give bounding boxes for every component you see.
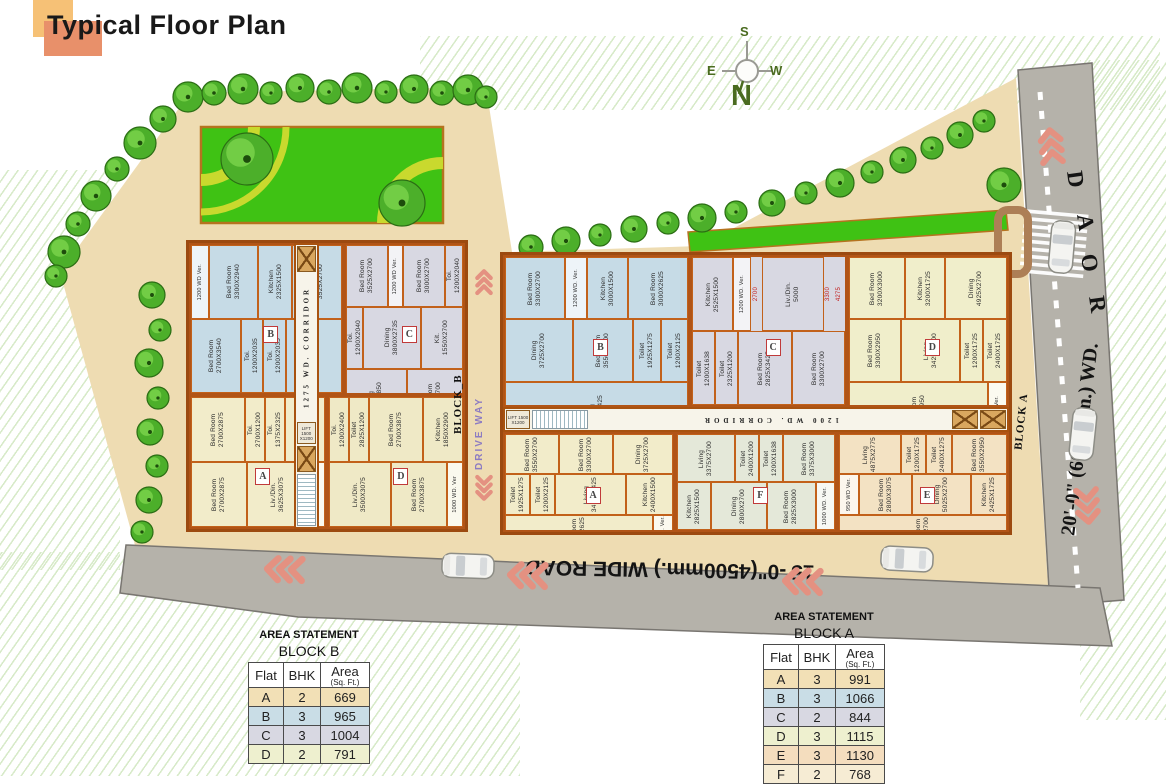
- room-label: Bed Room3550X2700: [524, 437, 540, 472]
- room-label: 1200 WD Ver.: [392, 258, 399, 294]
- room: Toilet1200X1638: [692, 331, 715, 405]
- tree-icon: [131, 521, 153, 543]
- area-table-row: A 2 669: [249, 688, 370, 707]
- room-label: Bed Room2700X2875: [211, 477, 227, 512]
- tree-icon: [48, 236, 80, 268]
- col-flat: Flat: [764, 645, 799, 670]
- cell-bhk: 2: [799, 765, 836, 784]
- room: Bed Room3300X2950: [849, 319, 901, 381]
- compass-north-label: N: [731, 80, 752, 113]
- room: Bed Room2700X3875: [369, 397, 423, 462]
- tree-icon: [124, 127, 156, 159]
- room: Bed Room2700X2875: [191, 397, 245, 462]
- room: Dining4925X2700: [945, 257, 1007, 319]
- area-table-row: D 2 791: [249, 745, 370, 764]
- room-label: Bed Room3000X2700: [416, 258, 432, 293]
- room-label: 4275: [836, 287, 843, 301]
- compass-east-label: E: [707, 63, 716, 78]
- cell-area: 844: [836, 708, 885, 727]
- room-label: 1200 WD. Ver.: [573, 269, 580, 307]
- tree-icon: [973, 110, 995, 132]
- area-table-row: F 2 768: [764, 765, 885, 784]
- cell-bhk: 2: [284, 688, 321, 707]
- flat-badge: C: [402, 326, 417, 343]
- room: 1200 WD Ver.: [191, 245, 209, 319]
- cell-flat: B: [249, 707, 284, 726]
- room-label: Kitchen2825X1500: [686, 489, 702, 524]
- car-icon: [1048, 220, 1076, 274]
- cell-bhk: 2: [799, 708, 836, 727]
- room-label: Living4875X2775: [862, 437, 878, 472]
- tree-icon: [890, 147, 916, 173]
- area-statement-block-name: BLOCK B: [248, 643, 370, 659]
- tree-icon: [379, 180, 425, 226]
- room: 1200 WD Ver.: [388, 245, 402, 307]
- room-label: Toi.2700X1200: [247, 412, 263, 447]
- flat-b: Bed Room3300X2700 1200 WD. Ver. Kitchen3…: [503, 255, 690, 407]
- tree-icon: [135, 349, 163, 377]
- road-letter-d: D: [1062, 169, 1089, 189]
- room-label: 1000 WD. Ver: [452, 476, 459, 513]
- room: Toi.2700X1200: [245, 397, 265, 462]
- area-statement-block-name: BLOCK A: [763, 625, 885, 641]
- room: Kitchen2525X1500: [692, 257, 733, 331]
- room-label: 1200 WD. Ver.: [660, 516, 667, 532]
- room-label: Toi.1200X2040: [347, 320, 363, 355]
- stairwell-icon: [297, 446, 316, 472]
- area-table-row: A 3 991: [764, 670, 885, 689]
- room-label: 2700: [753, 287, 760, 301]
- room: Toilet1200X1725: [901, 434, 926, 474]
- flat-e: Living4875X2775 Toilet1200X1725 Toilet24…: [837, 432, 1009, 532]
- col-area-unit: (Sq. Ft.): [836, 661, 884, 669]
- room-label: Dining2800X2700: [731, 489, 747, 524]
- room: Dining3725X2700: [613, 434, 673, 474]
- room: Bed Room3000X2625: [505, 515, 653, 532]
- room: 3300: [824, 257, 835, 331]
- flat-badge: D: [393, 468, 408, 485]
- room-label: Bed Room3300X2700: [578, 437, 594, 472]
- flat-badge: A: [255, 468, 270, 485]
- room: Bed Room3300X2700: [559, 434, 613, 474]
- room-label: Toilet2400X1725: [987, 333, 1003, 368]
- area-table: Flat BHK Area (Sq. Ft.) A 3 991 B 3: [763, 644, 885, 784]
- tree-icon: [173, 82, 203, 112]
- cell-bhk: 3: [284, 707, 321, 726]
- room-label: Living4575X3425: [589, 395, 605, 407]
- room-label: Toi.1200X2035: [244, 338, 260, 373]
- area-statement-title: AREA STATEMENT: [763, 611, 885, 623]
- room-label: Toilet2400X1200: [740, 441, 756, 476]
- tree-icon: [342, 73, 372, 103]
- room-label: Kitchen1850X2900: [435, 412, 451, 447]
- room-label: Kitchen2400X1500: [642, 477, 658, 512]
- tree-icon: [150, 106, 176, 132]
- cell-area: 991: [836, 670, 885, 689]
- room: 1000 WD. Ver.: [816, 482, 835, 530]
- room-label: Toilet1200X1725: [964, 333, 980, 368]
- room-label: Toi.1200X2035: [267, 338, 283, 373]
- compass: S E W N: [698, 24, 794, 110]
- cell-area: 1004: [321, 726, 370, 745]
- tree-icon: [657, 212, 679, 234]
- room: Living2700X4850: [346, 369, 407, 395]
- cell-area: 768: [836, 765, 885, 784]
- tree-icon: [139, 282, 165, 308]
- room: Bed Room2825X3000: [767, 482, 816, 530]
- block-a: Bed Room3300X2700 1200 WD. Ver. Kitchen3…: [500, 252, 1012, 535]
- room-label: Toi.1375X2325: [267, 412, 283, 447]
- stairwell-icon: [297, 246, 316, 272]
- col-flat: Flat: [249, 663, 284, 688]
- col-bhk: BHK: [284, 663, 321, 688]
- area-table-row: C 3 1004: [249, 726, 370, 745]
- room: Toilet2400X1200: [735, 434, 759, 482]
- room: Bed Room2800X3075: [859, 474, 912, 514]
- room: Bed Room3550X2700: [505, 434, 559, 474]
- room-label: 1200 WD. Ver.: [739, 275, 746, 313]
- flat-badge: E: [920, 487, 935, 504]
- room-label: Bed Room3300X2700: [811, 351, 827, 386]
- room: Bed Room2700X2875: [191, 462, 247, 527]
- room-label: Toilet2825X1200: [351, 412, 367, 447]
- tree-icon: [475, 86, 497, 108]
- tree-icon: [45, 265, 67, 287]
- car-icon: [880, 546, 933, 573]
- room-label: Bed Room2700X3875: [388, 412, 404, 447]
- tree-icon: [66, 212, 90, 236]
- area-statement-block-b: AREA STATEMENT BLOCK B Flat BHK Area (Sq…: [248, 629, 370, 764]
- room: Kitchen3200X1725: [905, 257, 945, 319]
- room: Living3375X2700: [677, 434, 735, 482]
- room-label: Dining4925X2700: [968, 271, 984, 306]
- room-label: Toilet2400X1275: [931, 437, 947, 472]
- room-label: Bed Room2800X3075: [878, 477, 894, 512]
- area-table-row: B 3 1066: [764, 689, 885, 708]
- tree-icon: [105, 157, 129, 181]
- cell-flat: A: [764, 670, 799, 689]
- room: 1200 WD. Ver.: [565, 257, 587, 319]
- room: Bed Room2700X3540: [191, 319, 241, 393]
- car-icon: [1068, 407, 1097, 461]
- lift: LIFT 1500 X1200: [506, 410, 530, 429]
- room-label: 1000 WD. Ver.: [822, 487, 829, 525]
- room: Toilet2400X1275: [926, 434, 951, 474]
- col-area-unit: (Sq. Ft.): [321, 679, 369, 687]
- room-label: Dining3725X2700: [531, 333, 547, 368]
- room: Bed Room3550X2950: [849, 382, 988, 408]
- cell-area: 1130: [836, 746, 885, 765]
- flat-c: Bed Room3525X2700 1200 WD Ver. Bed Room3…: [344, 243, 465, 395]
- tree-icon: [947, 122, 973, 148]
- tree-icon: [286, 74, 314, 102]
- room-label: Bed Room3400X2700: [915, 517, 931, 532]
- flat-badge: F: [753, 487, 768, 504]
- room-label: Toilet1200X1638: [696, 351, 712, 386]
- block-b-label: BLOCK_B: [452, 356, 464, 434]
- flat-a: Bed Room3550X2700 Bed Room3300X2700 Dini…: [503, 432, 675, 532]
- tree-icon: [202, 81, 226, 105]
- cell-bhk: 3: [284, 726, 321, 745]
- room: Bed Room3300X2700: [792, 331, 846, 405]
- room: Toi.1375X2325: [265, 397, 285, 462]
- tree-icon: [725, 201, 747, 223]
- room: Kitchen2325X1500: [258, 245, 292, 319]
- room-label: Bed Room3525X2700: [359, 258, 375, 293]
- compass-south-label: S: [740, 24, 749, 39]
- room: Toilet1200X2125: [530, 474, 555, 514]
- room-label: Dining3725X2700: [635, 437, 651, 472]
- room-label: 950 WD Ver.: [994, 396, 1001, 407]
- room: Toilet2825X1200: [349, 397, 369, 462]
- room: Bed Room3300X2700: [505, 257, 565, 319]
- room: Toilet1925X1275: [633, 319, 660, 381]
- area-statement-title: AREA STATEMENT: [248, 629, 370, 641]
- room-label: Bed Room3000X2700: [427, 382, 443, 394]
- room: Bed Room3200X3000: [849, 257, 905, 319]
- room: 1200 WD. Ver.: [653, 515, 673, 532]
- tree-icon: [921, 137, 943, 159]
- room-label: Bed Room3300X2700: [527, 271, 543, 306]
- tree-icon: [137, 419, 163, 445]
- cell-flat: A: [249, 688, 284, 707]
- room: Toilet1925X1275: [505, 474, 530, 514]
- room-label: Bed Room2825X3425: [757, 351, 773, 386]
- corridor: 1275 WD. CORRIDOR LIFT 1500 X1200: [294, 243, 319, 529]
- cell-flat: C: [764, 708, 799, 727]
- flat-badge: B: [263, 326, 278, 343]
- room: Bed Room3400X2700: [839, 515, 1007, 532]
- tree-icon: [149, 319, 171, 341]
- cell-area: 791: [321, 745, 370, 764]
- cell-bhk: 3: [799, 670, 836, 689]
- room: Toi.1200X2035: [241, 319, 264, 393]
- room: Bed Room3375X3000: [783, 434, 835, 482]
- room-label: Kit.1550X2700: [434, 320, 450, 355]
- room: 4275: [834, 257, 845, 331]
- title-block: Typical Floor Plan: [0, 0, 360, 60]
- staircase-icon: [532, 410, 588, 429]
- room-label: Liv./Din.3625X3075: [270, 477, 286, 512]
- tree-icon: [759, 190, 785, 216]
- cell-flat: B: [764, 689, 799, 708]
- col-area-label: Area: [836, 646, 884, 661]
- col-area: Area (Sq. Ft.): [836, 645, 885, 670]
- tree-icon: [861, 161, 883, 183]
- col-area: Area (Sq. Ft.): [321, 663, 370, 688]
- room-label: Dining5025X2700: [934, 477, 950, 512]
- room: Living4575X3425: [505, 382, 688, 408]
- area-table-row: D 3 1115: [764, 727, 885, 746]
- room-label: Kitchen2425X1725: [981, 477, 997, 512]
- room: Toilet1200X1638: [759, 434, 783, 482]
- room-label: Dining3800X2735: [384, 320, 400, 355]
- room-label: Living2700X4850: [368, 382, 384, 394]
- corridor-label: 1275 WD. CORRIDOR: [296, 273, 317, 421]
- room: Kitchen2400X1500: [626, 474, 673, 514]
- cell-flat: F: [764, 765, 799, 784]
- room: 950 WD Ver.: [988, 382, 1007, 408]
- tree-icon: [552, 227, 580, 255]
- car-icon: [442, 553, 495, 579]
- corridor: LIFT 1500 X1200 1200 WD. CORRIDOR: [503, 407, 1009, 432]
- tree-icon: [987, 168, 1021, 202]
- block-b: 1200 WD Ver. Bed Room3300X2940 Kitchen23…: [186, 240, 468, 532]
- room-label: Toilet1200X2125: [535, 477, 551, 512]
- stairwell-icon: [980, 410, 1006, 429]
- room-label: Toilet2325X1200: [719, 351, 735, 386]
- room: Kitchen2425X1725: [971, 474, 1007, 514]
- room: Toi.1200X2040: [346, 307, 364, 369]
- tree-icon: [621, 216, 647, 242]
- area-table-header-row: Flat BHK Area (Sq. Ft.): [764, 645, 885, 670]
- page-title: Typical Floor Plan: [47, 10, 287, 41]
- cell-flat: E: [764, 746, 799, 765]
- room: Toilet2400X1725: [983, 319, 1007, 381]
- room: Kitchen2825X1500: [677, 482, 711, 530]
- room-label: 950 WD Ver.: [846, 478, 853, 511]
- tree-icon: [147, 387, 169, 409]
- area-table-row: E 3 1130: [764, 746, 885, 765]
- room-label: Bed Room2700X3875: [411, 477, 427, 512]
- room-label: Kitchen3000X1500: [600, 271, 616, 306]
- room: Toilet1200X1725: [960, 319, 984, 381]
- room-label: 3300: [825, 287, 832, 301]
- room: Toi.1200X2400: [329, 397, 349, 462]
- room-label: Liv./Din.5000: [785, 282, 801, 307]
- room: Toi.1200X2040: [445, 245, 463, 307]
- room-label: Toilet1925X1275: [639, 333, 655, 368]
- room: 950 WD Ver.: [839, 474, 859, 514]
- room: Bed Room3525X2700: [346, 245, 389, 307]
- room: Toilet1200X2125: [661, 319, 688, 381]
- room-label: Toilet1925X1275: [510, 477, 526, 512]
- room-label: Kitchen2525X1500: [705, 277, 721, 312]
- room-label: Bed Room3300X2950: [867, 333, 883, 368]
- room: Liv./Din.3500X3075: [329, 462, 391, 527]
- area-statement-block-a: AREA STATEMENT BLOCK A Flat BHK Area (Sq…: [763, 611, 885, 784]
- room: 1000 WD. Ver: [447, 462, 463, 527]
- cell-bhk: 3: [799, 727, 836, 746]
- cell-area: 669: [321, 688, 370, 707]
- tree-icon: [589, 224, 611, 246]
- flat-badge: B: [593, 339, 608, 356]
- flat-d: Toi.1200X2400 Toilet2825X1200 Bed Room27…: [327, 395, 465, 529]
- room: Bed Room3550X2950: [952, 434, 1007, 474]
- driveway-label: DRIVE WAY: [474, 352, 485, 470]
- flat-b: 1200 WD Ver. Bed Room3300X2940 Kitchen23…: [189, 243, 344, 395]
- room-label: Bed Room3550X2950: [911, 395, 927, 407]
- room: Bed Room3000X2700: [403, 245, 446, 307]
- flat-badge: A: [586, 487, 601, 504]
- tree-icon: [81, 181, 111, 211]
- room: Living4875X2775: [839, 434, 901, 474]
- cell-bhk: 3: [799, 746, 836, 765]
- tree-icon: [826, 169, 854, 197]
- room-label: Bed Room2700X2875: [210, 412, 226, 447]
- area-table-row: B 3 965: [249, 707, 370, 726]
- lift: LIFT 1500 X1200: [297, 422, 316, 444]
- room-label: Toi.1200X2040: [446, 258, 462, 293]
- room-label: Kitchen2325X1500: [268, 264, 284, 299]
- room: Bed Room3300X2940: [209, 245, 258, 319]
- road-letter-o: O: [1076, 252, 1103, 273]
- room-label: Bed Room2700X3540: [208, 338, 224, 373]
- tree-icon: [688, 204, 716, 232]
- cell-flat: D: [764, 727, 799, 746]
- tree-icon: [317, 80, 341, 104]
- flat-c: Kitchen2525X1500 1200 WD. Ver. 2700 Liv.…: [690, 255, 847, 407]
- room-label: Bed Room3200X3000: [869, 271, 885, 306]
- stairwell-icon: [952, 410, 978, 429]
- room: Kitchen3000X1500: [587, 257, 629, 319]
- room-label: Kitchen3200X1725: [917, 271, 933, 306]
- room-label: Liv./Din.3500X3075: [352, 477, 368, 512]
- staircase-icon: [297, 474, 316, 526]
- room-label: Toilet1200X1725: [906, 437, 922, 472]
- room: Liv./Din.5000: [762, 257, 824, 331]
- cell-bhk: 2: [284, 745, 321, 764]
- cell-bhk: 3: [799, 689, 836, 708]
- room-label: Bed Room3000X2625: [650, 271, 666, 306]
- cell-flat: C: [249, 726, 284, 745]
- room: Dining3725X2700: [505, 319, 573, 381]
- flat-badge: D: [925, 339, 940, 356]
- room-label: Toi.1200X2400: [331, 412, 347, 447]
- room-label: Bed Room2825X3000: [783, 489, 799, 524]
- room-label: 1200 WD Ver.: [197, 264, 204, 300]
- flat-badge: C: [766, 339, 781, 356]
- cell-flat: D: [249, 745, 284, 764]
- flat-d: Bed Room3200X3000 Kitchen3200X1725 Dinin…: [847, 255, 1009, 407]
- tree-icon: [136, 487, 162, 513]
- area-table: Flat BHK Area (Sq. Ft.) A 2 669 B 3: [248, 662, 370, 764]
- room: 2700: [751, 257, 762, 331]
- room: Bed Room3000X2625: [628, 257, 688, 319]
- tree-icon: [260, 82, 282, 104]
- room-label: Toilet1200X2125: [667, 333, 683, 368]
- cell-area: 1115: [836, 727, 885, 746]
- tree-icon: [228, 74, 258, 104]
- flat-f: Living3375X2700 Toilet2400X1200 Toilet12…: [675, 432, 837, 532]
- tree-icon: [430, 81, 454, 105]
- room-label: Living3375X2700: [698, 441, 714, 476]
- room-label: Toilet1200X1638: [763, 441, 779, 476]
- corridor-label: 1200 WD. CORRIDOR: [589, 409, 951, 430]
- tree-icon: [375, 81, 397, 103]
- cell-area: 1066: [836, 689, 885, 708]
- tree-icon: [146, 455, 168, 477]
- col-bhk: BHK: [799, 645, 836, 670]
- tree-icon: [400, 75, 428, 103]
- room: Toilet2325X1200: [715, 331, 738, 405]
- room-label: Bed Room3375X3000: [801, 441, 817, 476]
- col-area-label: Area: [321, 664, 369, 679]
- tree-icon: [221, 133, 273, 185]
- room-label: Bed Room3300X2940: [226, 264, 242, 299]
- area-table-row: C 2 844: [764, 708, 885, 727]
- tree-icon: [795, 182, 817, 204]
- area-table-header-row: Flat BHK Area (Sq. Ft.): [249, 663, 370, 688]
- room-label: Bed Room3550X2950: [971, 437, 987, 472]
- room: 1200 WD. Ver.: [733, 257, 751, 331]
- cell-area: 965: [321, 707, 370, 726]
- room-label: Bed Room3000X2625: [571, 517, 587, 532]
- compass-west-label: W: [770, 63, 782, 78]
